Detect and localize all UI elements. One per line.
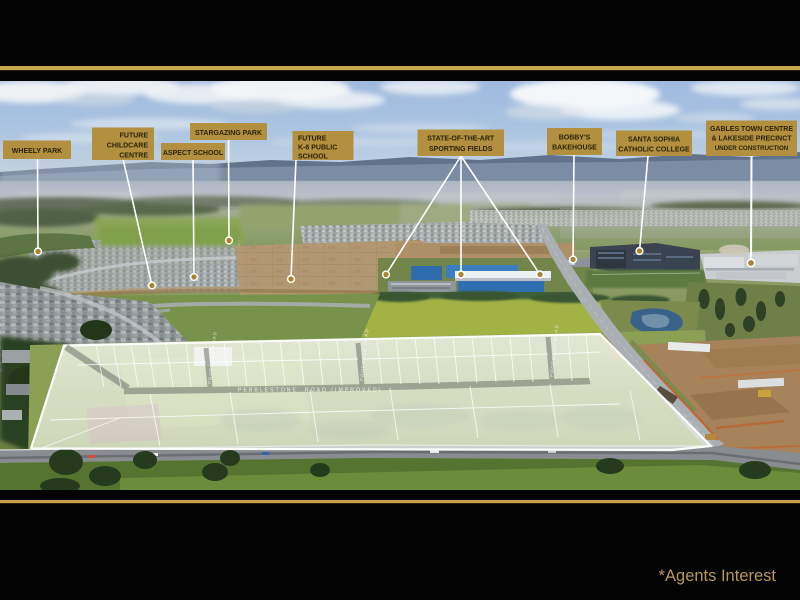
svg-text:PEBBLESTONE ROAD (IMPROVED): PEBBLESTONE ROAD (IMPROVED) [238, 388, 382, 394]
svg-text:STATE-OF-THE-ART: STATE-OF-THE-ART [427, 136, 495, 143]
svg-text:STARGAZING PARK: STARGAZING PARK [195, 130, 262, 137]
svg-text:SCHOOL: SCHOOL [298, 154, 329, 161]
svg-text:FUTURE: FUTURE [298, 136, 327, 143]
svg-text:BAKEHOUSE: BAKEHOUSE [552, 145, 597, 152]
svg-text:ASPECT SCHOOL: ASPECT SCHOOL [163, 150, 224, 157]
svg-text:SANTA SOPHIA: SANTA SOPHIA [628, 137, 680, 144]
svg-text:WHEELY PARK: WHEELY PARK [12, 148, 62, 155]
svg-text:CHILDCARE: CHILDCARE [107, 143, 149, 150]
svg-text:CATHOLIC COLLEGE: CATHOLIC COLLEGE [618, 147, 690, 154]
svg-text:BOBBY'S: BOBBY'S [559, 135, 591, 142]
svg-text:SPORTING FIELDS: SPORTING FIELDS [429, 146, 493, 153]
svg-text:& LAKESIDE PRECINCT: & LAKESIDE PRECINCT [711, 136, 792, 143]
svg-text:GABLES TOWN CENTRE: GABLES TOWN CENTRE [710, 126, 793, 133]
svg-text:*Agents Interest: *Agents Interest [659, 567, 777, 585]
svg-text:UNDER CONSTRUCTION: UNDER CONSTRUCTION [715, 145, 789, 152]
svg-text:CENTRE: CENTRE [119, 153, 148, 160]
svg-text:K-6 PUBLIC: K-6 PUBLIC [298, 145, 337, 152]
svg-text:FUTURE: FUTURE [120, 133, 149, 140]
